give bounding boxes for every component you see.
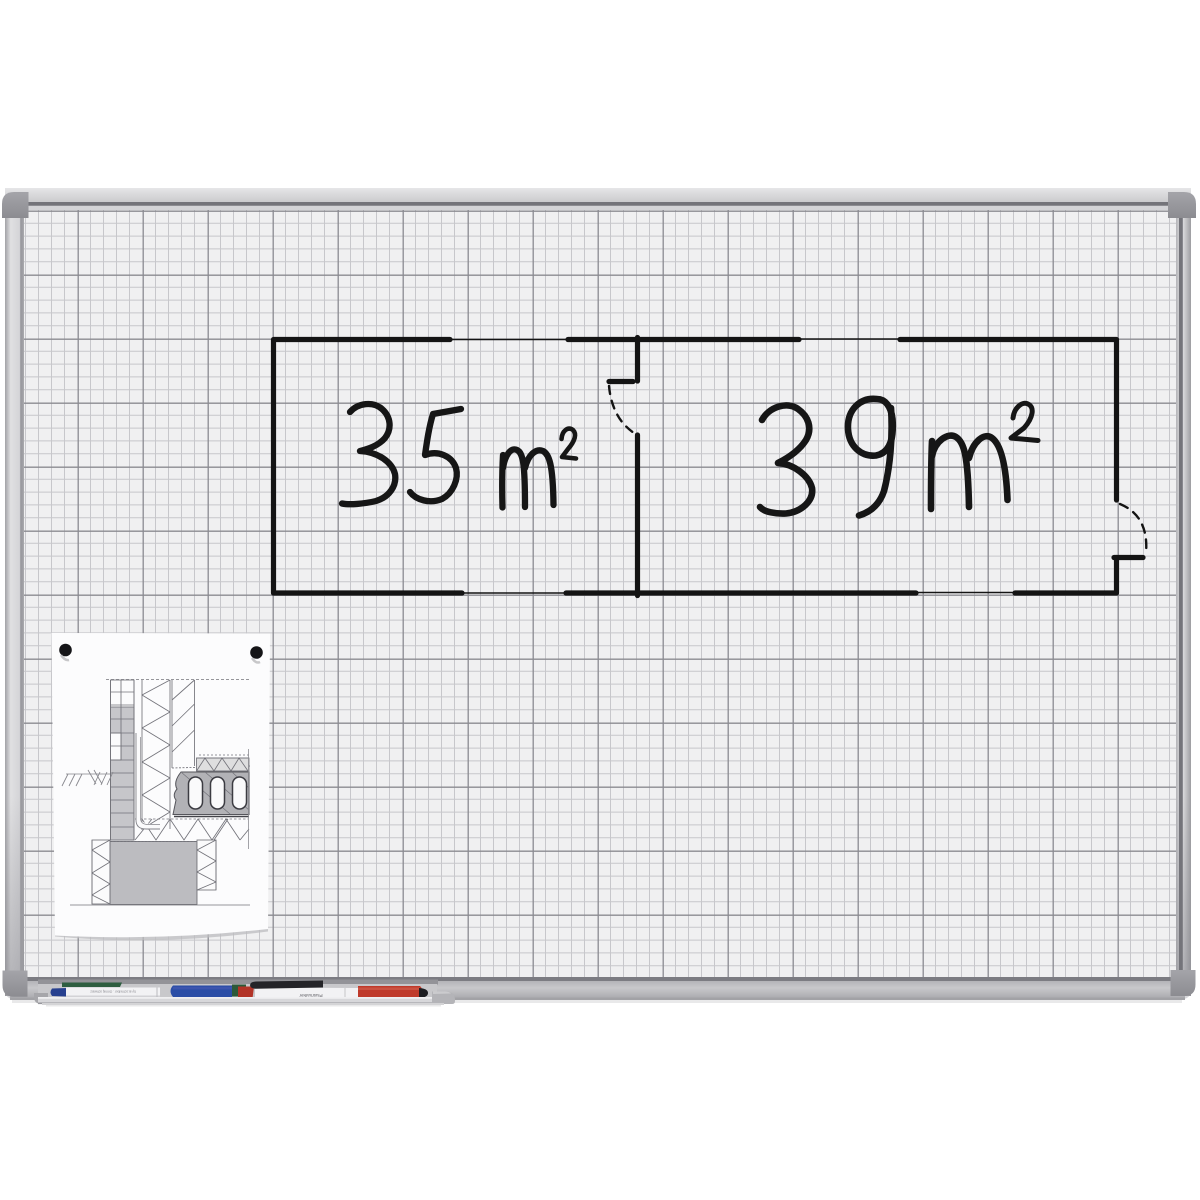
svg-text:by ar.schreiber . Omniq schwar: by ar.schreiber . Omniq schwarz — [90, 990, 136, 994]
